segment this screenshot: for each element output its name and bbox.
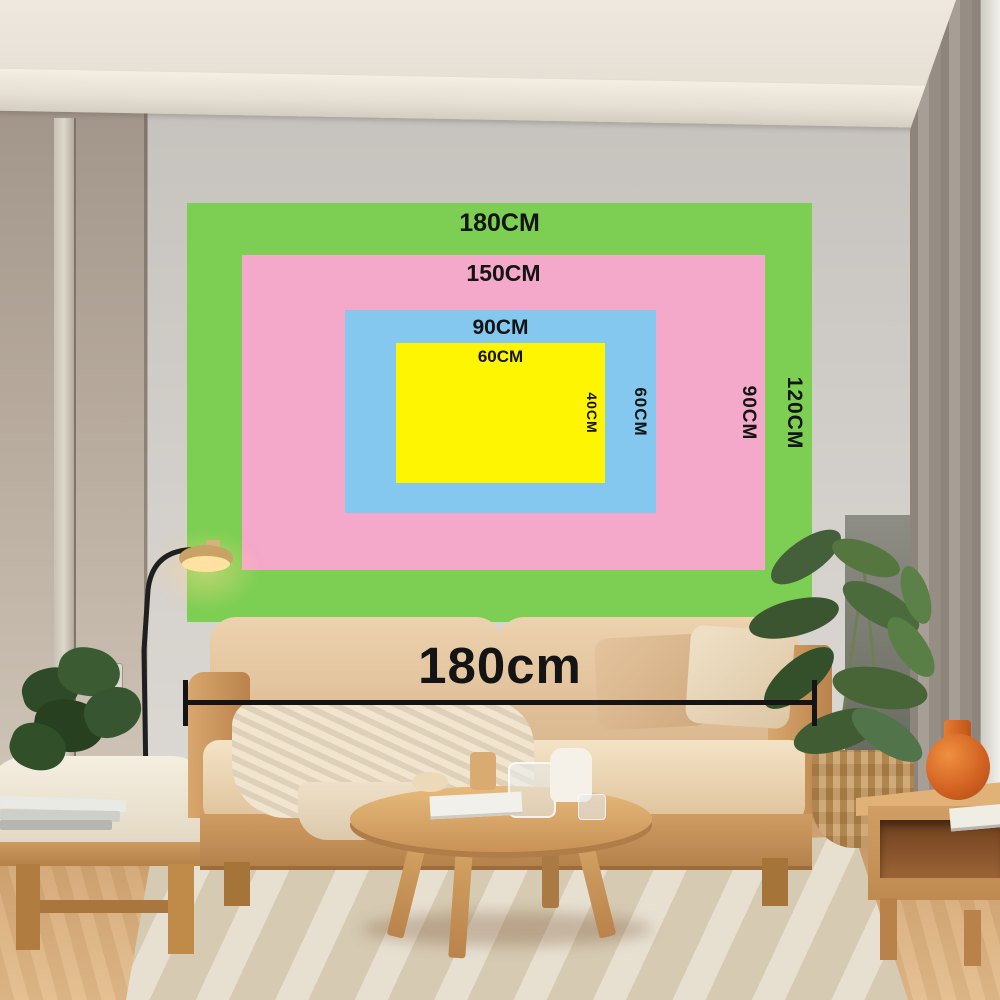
- sofa-width-label: 180cm: [300, 636, 700, 695]
- measure-tick-right: [812, 680, 817, 726]
- sofa-leg: [224, 862, 250, 906]
- sofa-leg: [762, 858, 788, 906]
- size-layer-60x40: 60CM 40CM: [396, 343, 605, 483]
- bench-leg: [168, 864, 194, 954]
- height-label-90cm: 90CM: [737, 385, 759, 440]
- width-label-90cm: 90CM: [345, 316, 656, 340]
- wooden-mug: [470, 752, 496, 790]
- wooden-bowl: [412, 772, 448, 792]
- living-room-size-chart-photo: 180CM 120CM 150CM 90CM 90CM 60CM 60CM 40…: [0, 0, 1000, 1000]
- height-label-60cm: 60CM: [630, 387, 650, 436]
- bench-shelf: [28, 900, 180, 913]
- paper-on-cabinet: [949, 804, 1000, 832]
- width-label-180cm: 180CM: [187, 209, 812, 238]
- width-label-60cm: 60CM: [396, 347, 605, 367]
- bench-leg: [16, 864, 40, 950]
- bench-frame: [0, 842, 218, 866]
- width-label-150cm: 150CM: [242, 260, 765, 287]
- sheer-curtain: [981, 0, 1000, 810]
- size-chart: 180CM 120CM 150CM 90CM 90CM 60CM 60CM 40…: [187, 203, 812, 622]
- height-label-40cm: 40CM: [584, 392, 600, 433]
- magazine: [0, 820, 112, 830]
- measure-line: [185, 700, 815, 705]
- open-book: [429, 792, 522, 820]
- cabinet-leg: [880, 898, 897, 960]
- measure-tick-left: [183, 680, 188, 726]
- orange-vase: [926, 734, 990, 800]
- small-glass: [578, 794, 606, 820]
- height-label-120cm: 120CM: [782, 376, 806, 449]
- cabinet-leg: [964, 910, 981, 966]
